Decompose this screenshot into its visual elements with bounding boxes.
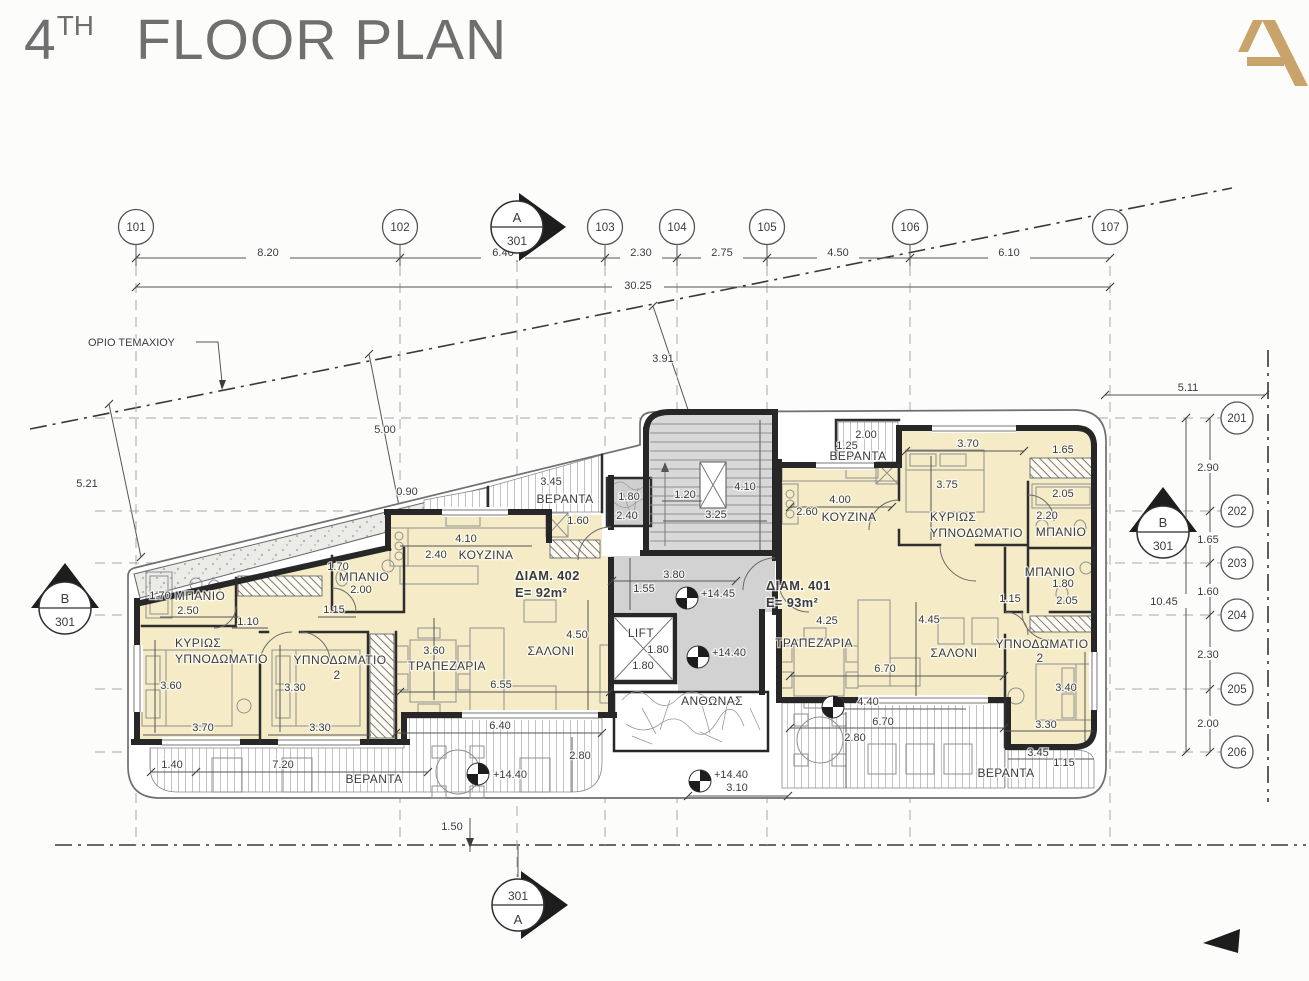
room-label-bedroom2: ΥΠΝΟΔΩΜΑΤΙΟ (294, 653, 387, 667)
grid-bubble-105: 105 (750, 210, 785, 245)
dim-value: 2.60 (796, 506, 817, 518)
room-label-bedroom2: ΥΠΝΟΔΩΜΑΤΙΟ (996, 637, 1089, 651)
section-marker-b-right: B 301 (1129, 487, 1197, 558)
dim-value: 4.00 (829, 494, 850, 506)
room-label-bedroom-main: ΚΥΡΙΩΣ (930, 510, 976, 524)
dim-value: 2.75 (711, 247, 732, 259)
room-label-salon: ΣΑΛΟΝΙ (931, 646, 978, 660)
room-label-bath: ΜΠΑΝΙΟ (1036, 525, 1086, 539)
dim-value: 2.00 (350, 584, 371, 596)
section-marker-b-left: B 301 (31, 563, 99, 634)
dim-value: 1.80 (632, 660, 653, 672)
grid-bubble-label: 204 (1227, 610, 1247, 622)
dim-value: 1.60 (1197, 586, 1218, 598)
room-label-lift: LIFT (628, 626, 655, 640)
room-label-bedroom2: 2 (1036, 651, 1043, 665)
dim-value: 0.90 (396, 486, 417, 498)
dim-value: 2.05 (1052, 488, 1073, 500)
level-value: +14.40 (712, 647, 746, 659)
dim-value: 3.75 (936, 479, 957, 491)
dim-total: 10.45 (1150, 596, 1178, 608)
grid-bubble-205: 205 (1221, 673, 1253, 705)
dim-value: 3.25 (705, 509, 726, 521)
floor-plan-drawing: 101 102 103 104 105 106 107 8.20 6.40 2.… (0, 0, 1309, 981)
grid-dims-top: 8.20 6.40 2.30 2.75 4.50 6.10 30.25 (257, 247, 1019, 292)
dim-value: 2.30 (1197, 649, 1218, 661)
dim-value: 1.10 (237, 616, 258, 628)
dim-value: 4.40 (857, 696, 878, 708)
grid-bubble-label: 205 (1227, 684, 1246, 696)
level-marker-icon (467, 763, 489, 785)
room-label-veranda: ΒΕΡΑΝΤΑ (536, 492, 593, 506)
dim-value: 2.00 (855, 429, 876, 441)
dim-value: 3.80 (663, 569, 684, 581)
dim-value: 1.15 (323, 604, 344, 616)
dim-value: 3.10 (726, 782, 747, 794)
room-label-kitchen: ΚΟΥΖΙΝΑ (459, 548, 514, 562)
dim-value: 3.30 (284, 682, 305, 694)
dim-value: 1.80 (647, 644, 668, 656)
room-label-dining: ΤΡΑΠΕΖΑΡΙΑ (408, 659, 486, 673)
grid-bubble-label: 102 (390, 222, 409, 234)
level-value: +14.40 (493, 769, 527, 781)
dim-arrow-icon (466, 838, 474, 848)
dim-value: 2.05 (1056, 595, 1077, 607)
dim-value: 3.30 (309, 722, 330, 734)
dim-value: 1.65 (1197, 534, 1218, 546)
grid-bubble-label: 106 (900, 222, 919, 234)
room-label-bedroom2: 2 (333, 668, 340, 682)
dim-value: 2.50 (177, 605, 198, 617)
dim-value: 6.10 (998, 247, 1019, 259)
north-arrow-icon (1203, 929, 1240, 953)
apartment-name: ΔΙΑΜ. 402 (515, 568, 580, 583)
plot-boundary-label: ΟΡΙΟ ΤΕΜΑΧΙΟΥ (88, 337, 176, 349)
grid-bubble-label: 103 (595, 222, 614, 234)
dim-value: 1.15 (999, 593, 1020, 605)
section-letter: B (1159, 515, 1168, 530)
level-marker-icon (687, 646, 709, 668)
floor-plan-page: 4THFLOOR PLAN (0, 0, 1309, 981)
dim-value: 1.50 (441, 821, 462, 833)
grid-bubble-106: 106 (893, 210, 928, 245)
grid-bubble-202: 202 (1221, 495, 1253, 527)
level-value: +14.40 (714, 769, 748, 781)
room-label-bedroom-main: ΥΠΝΟΔΩΜΑΤΙΟ (930, 526, 1023, 540)
dim-value: 3.40 (1055, 682, 1076, 694)
dim-value: 1.80 (618, 491, 639, 503)
dim-total: 30.25 (624, 280, 652, 292)
room-label-planter: ΑΝΘΩΝΑΣ (681, 694, 743, 708)
dim-value: 1.15 (1053, 757, 1074, 769)
dim-value: 1.20 (674, 489, 695, 501)
grid-bubble-206: 206 (1221, 736, 1253, 768)
section-sheet: 301 (55, 615, 75, 629)
dim-value: 3.70 (957, 438, 978, 450)
room-label-dining: ΤΡΑΠΕΖΑΡΙΑ (775, 636, 853, 650)
dim-value: 5.00 (374, 424, 395, 436)
room-label-bath: ΜΠΑΝΙΟ (175, 589, 225, 603)
dim-value: 2.80 (569, 750, 590, 762)
dim-value: 4.50 (566, 629, 587, 641)
dim-value: 7.20 (272, 759, 293, 771)
leader-arrow-icon (219, 380, 226, 390)
dim-value: 3.45 (1027, 747, 1048, 759)
grid-bubble-label: 201 (1227, 413, 1246, 425)
dim-value: 3.91 (652, 353, 673, 365)
level-value: +14.45 (701, 588, 735, 600)
room-label-kitchen: ΚΟΥΖΙΝΑ (822, 510, 877, 524)
dim-value: 1.60 (567, 515, 588, 527)
dim-value: 3.45 (540, 476, 561, 488)
room-label-bedroom-main: ΚΥΡΙΩΣ (175, 636, 221, 650)
grid-bubble-103: 103 (588, 210, 623, 245)
section-sheet: 301 (507, 234, 527, 248)
grid-bubble-104: 104 (660, 210, 695, 245)
plot-boundary-diagonal (30, 188, 1232, 429)
dim-value: 6.55 (490, 679, 511, 691)
boundary-leader (196, 342, 222, 382)
grid-bubble-label: 203 (1227, 558, 1246, 570)
company-logo-icon (1238, 20, 1308, 86)
room-label-veranda: ΒΕΡΑΝΤΑ (345, 772, 402, 786)
dim-value: 2.20 (1036, 510, 1057, 522)
room-label-bath: ΜΠΑΝΙΟ (339, 570, 389, 584)
dim-value: 5.21 (76, 478, 97, 490)
grid-bubble-204: 204 (1221, 599, 1253, 631)
section-letter: B (61, 591, 70, 606)
dim-value: 8.20 (257, 247, 278, 259)
dim-value: 3.60 (423, 645, 444, 657)
section-letter: A (514, 912, 523, 927)
dim-value: 6.70 (874, 663, 895, 675)
dim-value: 2.30 (630, 247, 651, 259)
room-label-veranda: ΒΕΡΑΝΤΑ (829, 449, 886, 463)
dim-value: 1.55 (633, 583, 654, 595)
grid-bubble-label: 101 (126, 222, 145, 234)
level-marker-icon (689, 770, 711, 792)
grid-bubble-102: 102 (383, 210, 418, 245)
level-marker-icon (822, 696, 844, 718)
dim-value: 2.40 (616, 510, 637, 522)
dim-value: 3.30 (1035, 719, 1056, 731)
dim-value: 2.80 (844, 732, 865, 744)
dim-value: 3.60 (160, 680, 181, 692)
dim-value: 2.90 (1197, 462, 1218, 474)
dim-value: 6.40 (489, 720, 510, 732)
dim-value: 2.40 (425, 549, 446, 561)
dim-value: 5.11 (1178, 382, 1199, 394)
dim-value: 1.65 (1052, 444, 1073, 456)
section-letter: A (513, 210, 522, 225)
apartment-area: E= 92m² (515, 585, 567, 600)
grid-bubble-label: 107 (1100, 222, 1119, 234)
dim-value: 1.70 (149, 590, 170, 602)
dim-value: 4.25 (816, 615, 837, 627)
section-sheet: 301 (1153, 539, 1173, 553)
dim-value: 4.10 (734, 481, 755, 493)
grid-bubble-label: 105 (757, 222, 776, 234)
grid-bubble-107: 107 (1093, 210, 1128, 245)
section-sheet: 301 (508, 889, 528, 903)
dim-value: 2.00 (1197, 718, 1218, 730)
section-marker-a-bottom: 301 A (492, 845, 568, 939)
level-marker-icon (676, 587, 698, 609)
apartment-name: ΔΙΑΜ. 401 (766, 578, 831, 593)
room-label-veranda: ΒΕΡΑΝΤΑ (977, 766, 1034, 780)
grid-bubble-203: 203 (1221, 547, 1253, 579)
dim-value: 1.40 (161, 759, 182, 771)
room-label-bedroom-main: ΥΠΝΟΔΩΜΑΤΙΟ (175, 652, 268, 666)
grid-bubble-label: 206 (1227, 747, 1246, 759)
dim-value: 1.80 (1052, 578, 1073, 590)
room-label-bath: ΜΠΑΝΙΟ (1025, 565, 1075, 579)
dim-value: 6.70 (872, 716, 893, 728)
grid-bubble-label: 202 (1227, 506, 1246, 518)
dim-value: 4.45 (918, 614, 939, 626)
dim-value: 4.10 (455, 533, 476, 545)
grid-bubble-label: 104 (667, 222, 687, 234)
grid-bubble-101: 101 (119, 210, 154, 245)
dim-value: 4.50 (827, 247, 848, 259)
apartment-area: E= 93m² (766, 595, 818, 610)
grid-bubble-201: 201 (1221, 402, 1253, 434)
room-label-salon: ΣΑΛΟΝΙ (528, 644, 575, 658)
dim-value: 3.70 (192, 722, 213, 734)
